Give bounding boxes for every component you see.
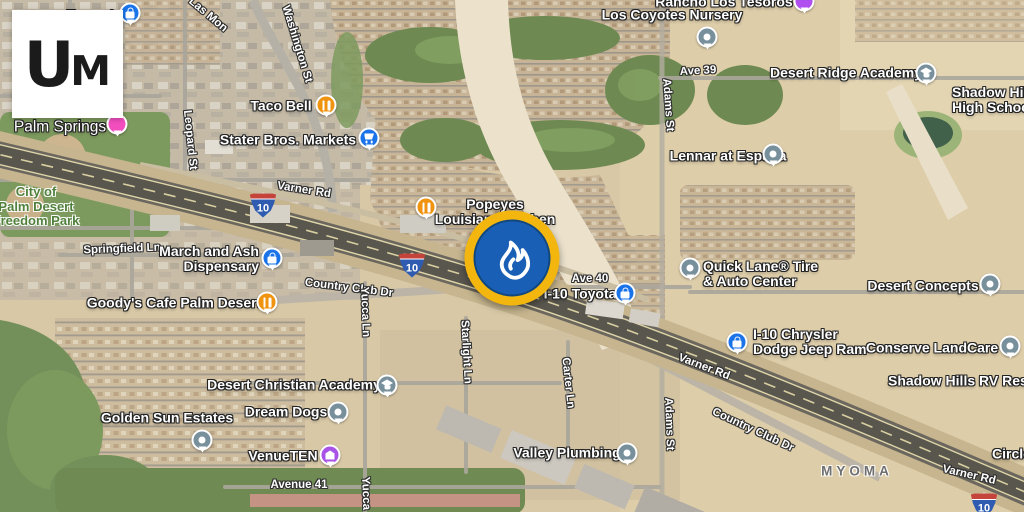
street-label-starlight-ln: Starlight Ln [458, 320, 473, 384]
marker-taco-bell [316, 95, 337, 116]
place-label-i-10-chrysler-dodge-jeep-ram: I-10 Chrysler Dodge Jeep Ram [753, 327, 867, 357]
shield-number: 10 [257, 203, 269, 215]
marker-quick-lane [680, 258, 701, 279]
street-label-ave-40: Ave 40 [572, 273, 609, 285]
fire-event-marker[interactable] [465, 211, 560, 306]
street-label-yucca-ln: Yucca Ln [359, 477, 373, 512]
restaurant-icon [318, 97, 335, 114]
shopping-bag-icon [617, 285, 634, 302]
park-label-city-of-palm-desert-freedom-park: City of Palm Desert Freedom Park [0, 185, 79, 229]
place-label-stater-bros-markets: Stater Bros. Markets [220, 132, 356, 147]
pin-icon [330, 404, 347, 421]
logo-letter-u: U [24, 28, 70, 101]
place-label-golden-sun-estates: Golden Sun Estates [101, 410, 233, 425]
street-label-las-mon: Las Mon [186, 0, 229, 35]
street-label-carter-ln: Carter Ln [559, 357, 576, 409]
street-label-springfield-ln: Springfield Ln [83, 242, 161, 257]
place-label-taco-bell: Taco Bell [250, 98, 311, 113]
street-label-adams-st: Adams St [662, 397, 676, 450]
fire-icon [485, 231, 539, 285]
pin-icon [619, 445, 636, 462]
street-label-country-club-dr: Country Club Dr [710, 406, 796, 454]
marker-desert-christian-academy [377, 375, 398, 396]
place-label-shadow-hills-rv-resort: Shadow Hills RV Resort [888, 373, 1024, 388]
pin-icon [194, 432, 211, 449]
pin-icon [982, 276, 999, 293]
school-icon [918, 65, 935, 82]
street-label-adams-st: Adams St [660, 78, 676, 132]
marker-venue-ten [320, 445, 341, 466]
pin-icon [699, 29, 716, 46]
area-label-myoma: MYOMA [821, 464, 893, 479]
marker-los-coyotes-nursery [697, 27, 718, 48]
marker-golden-sun-estates [192, 430, 213, 451]
marker-stater-bros-markets [359, 128, 380, 149]
street-label-country-club-dr: Country Club Dr [304, 277, 394, 300]
liveuamap-screen: Washington StLas MonLeopard StVarner RdS… [0, 0, 1024, 512]
logo-letter-m: M [70, 47, 111, 95]
street-label-leopard-st: Leopard St [181, 110, 199, 171]
venue-icon [322, 447, 339, 464]
marker-conserve-landcare [1000, 336, 1021, 357]
street-label-varner-rd: Varner Rd [676, 352, 731, 383]
shopping-bag-icon [122, 5, 139, 22]
street-label-yucca-ln: Yucca Ln [358, 287, 372, 338]
shopping-bag-icon [729, 334, 746, 351]
place-label-goody-s-cafe-palm-desert: Goody's Cafe Palm Desert [87, 295, 262, 310]
shopping-bag-icon [264, 250, 281, 267]
marker-lennar-at-espana [763, 144, 784, 165]
street-label-avenue-41: Avenue 41 [270, 479, 327, 491]
marker-i10-toyota [615, 283, 636, 304]
street-label-varner-rd: Varner Rd [941, 463, 997, 487]
place-label-desert-ridge-academy: Desert Ridge Academy [770, 65, 922, 80]
shopping-cart-icon [361, 130, 378, 147]
street-label-ave-39: Ave 39 [679, 64, 716, 78]
school-icon [379, 377, 396, 394]
place-label-valley-plumbing: Valley Plumbing [513, 445, 620, 460]
marker-dream-dogs [328, 402, 349, 423]
interstate-10-shield: 10 [970, 493, 998, 512]
marker-desert-ridge-academy [916, 63, 937, 84]
marker-i10-chrysler [727, 332, 748, 353]
liveuamap-logo[interactable]: U M [12, 10, 123, 118]
interstate-10-shield: 10 [398, 253, 426, 278]
marker-march-and-ash [262, 248, 283, 269]
dot-icon [109, 116, 126, 133]
restaurant-icon [259, 294, 276, 311]
street-label-washington-st: Washington St [280, 4, 315, 84]
place-label-quick-lane-tire-auto-center: Quick Lane® Tire & Auto Center [703, 259, 818, 289]
place-label-i-10-toyota: I-10 Toyota [544, 286, 617, 301]
place-label-conserve-landcare: Conserve LandCare [866, 340, 998, 355]
place-label-march-and-ash-dispensary: March and Ash Dispensary [159, 244, 259, 274]
place-label-shadow-hills-high-school: Shadow Hills High School [952, 85, 1024, 115]
restaurant-icon [418, 199, 435, 216]
street-label-varner-rd: Varner Rd [276, 180, 332, 200]
place-label-desert-christian-academy: Desert Christian Academy [207, 377, 381, 392]
marker-popeyes [416, 197, 437, 218]
pin-icon [1002, 338, 1019, 355]
marker-valley-plumbing [617, 443, 638, 464]
place-label-dream-dogs: Dream Dogs [245, 404, 327, 419]
marker-desert-concepts [980, 274, 1001, 295]
place-label-venueten: VenueTEN [248, 448, 317, 463]
shield-number: 10 [406, 263, 418, 275]
dot-icon [796, 0, 813, 10]
marker-goodys-cafe [257, 292, 278, 313]
pin-icon [765, 146, 782, 163]
shield-number: 10 [978, 503, 990, 512]
place-label-los-coyotes-nursery: Los Coyotes Nursery [602, 7, 743, 22]
interstate-10-shield: 10 [249, 193, 277, 218]
pin-icon [682, 260, 699, 277]
place-label-desert-concepts: Desert Concepts [867, 278, 978, 293]
place-label-circle: Circle [992, 446, 1024, 461]
marker-rancho-los-tesoros [794, 0, 815, 12]
place-label-palm-springs: Palm Springs [14, 120, 106, 137]
